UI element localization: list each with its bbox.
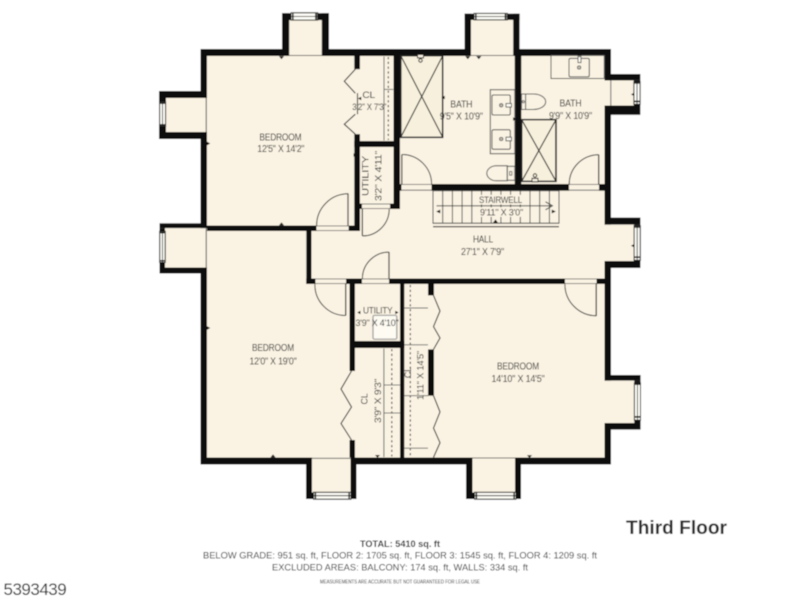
svg-text:BATH: BATH xyxy=(560,99,582,110)
svg-text:12'5" X 14'2": 12'5" X 14'2" xyxy=(257,144,305,155)
svg-text:UTILITY: UTILITY xyxy=(360,156,370,196)
svg-text:TOTAL: 5410 sq. ft: TOTAL: 5410 sq. ft xyxy=(360,539,441,550)
svg-text:STAIRWELL: STAIRWELL xyxy=(479,195,522,205)
svg-text:BATH: BATH xyxy=(450,99,472,110)
svg-text:UTILITY: UTILITY xyxy=(363,306,393,316)
svg-text:BEDROOM: BEDROOM xyxy=(497,361,539,372)
svg-text:3'9" X 9'3": 3'9" X 9'3" xyxy=(373,379,383,423)
svg-text:9'9" X 10'9": 9'9" X 10'9" xyxy=(549,111,593,122)
svg-text:BEDROOM: BEDROOM xyxy=(252,343,294,354)
svg-text:Third Floor: Third Floor xyxy=(626,517,727,539)
svg-text:12'0" X 19'0": 12'0" X 19'0" xyxy=(250,356,298,367)
svg-text:9'11" X 3'0": 9'11" X 3'0" xyxy=(480,208,523,218)
svg-text:1'11" X 14'5": 1'11" X 14'5" xyxy=(416,351,426,400)
svg-text:BELOW GRADE: 951 sq. ft, FLOOR: BELOW GRADE: 951 sq. ft, FLOOR 2: 1705 s… xyxy=(203,551,597,562)
svg-text:EXCLUDED AREAS: BALCONY: 174 s: EXCLUDED AREAS: BALCONY: 174 sq. ft, WAL… xyxy=(272,562,528,573)
svg-text:3'9" X 4'10": 3'9" X 4'10" xyxy=(356,318,399,328)
svg-text:MEASUREMENTS ARE ACCURATE BUT: MEASUREMENTS ARE ACCURATE BUT NOT GUARAN… xyxy=(320,580,480,586)
svg-text:HALL: HALL xyxy=(473,234,494,245)
svg-text:CL: CL xyxy=(362,90,375,100)
svg-text:9'5" X 10'9": 9'5" X 10'9" xyxy=(440,112,484,123)
svg-text:3'2" X 4'11": 3'2" X 4'11" xyxy=(374,151,384,201)
svg-text:27'1" X 7'9": 27'1" X 7'9" xyxy=(461,247,505,258)
svg-text:BEDROOM: BEDROOM xyxy=(259,133,301,144)
svg-text:5393439: 5393439 xyxy=(4,580,67,599)
svg-text:CL: CL xyxy=(403,367,413,378)
svg-text:CL: CL xyxy=(360,393,370,404)
svg-text:3'2" X 7'3": 3'2" X 7'3" xyxy=(352,102,386,112)
svg-text:14'10" X 14'5": 14'10" X 14'5" xyxy=(492,374,546,385)
